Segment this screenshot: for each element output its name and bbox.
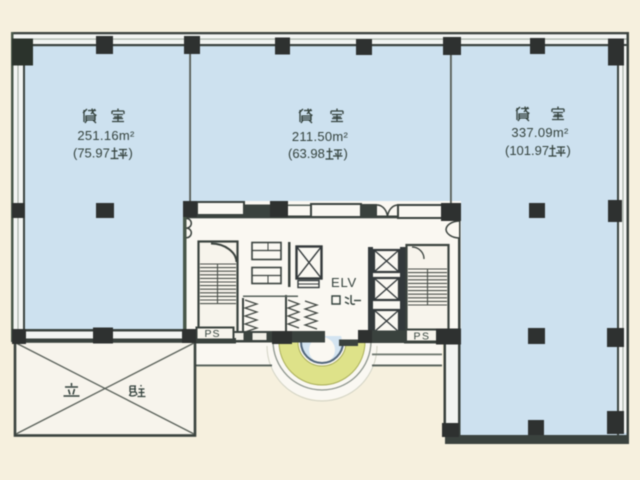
svg-text:PS: PS xyxy=(205,328,221,340)
svg-text:251.16m²: 251.16m² xyxy=(77,128,135,143)
svg-text:337.09m²: 337.09m² xyxy=(511,125,569,140)
svg-text:): ) xyxy=(129,146,133,161)
svg-text:ELV: ELV xyxy=(331,275,357,290)
svg-text:(101.97: (101.97 xyxy=(505,143,549,158)
svg-text:): ) xyxy=(567,143,571,158)
svg-text:(63.98: (63.98 xyxy=(288,146,325,161)
svg-text:(75.97: (75.97 xyxy=(73,146,110,161)
svg-text:211.50m²: 211.50m² xyxy=(292,129,349,144)
svg-text:): ) xyxy=(344,146,348,161)
svg-text:PS: PS xyxy=(414,330,431,342)
